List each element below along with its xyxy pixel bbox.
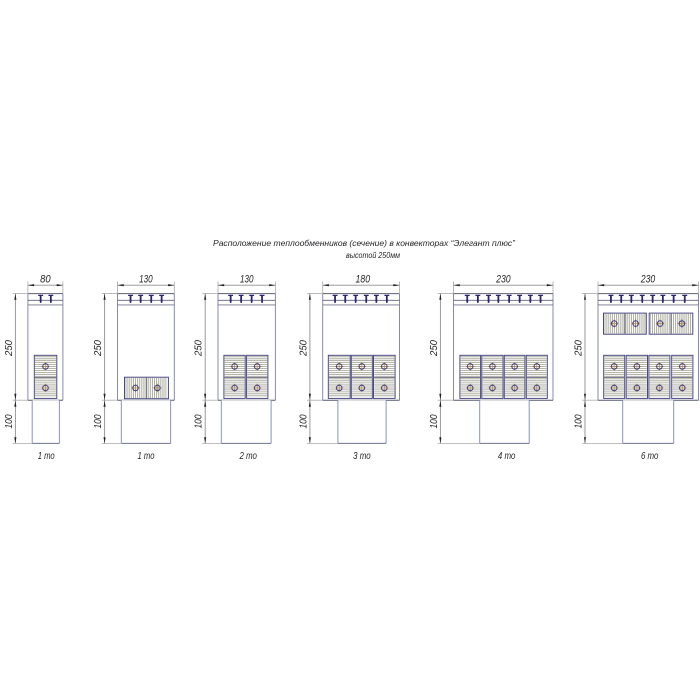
svg-text:3 то: 3 то bbox=[353, 451, 371, 462]
svg-text:1 то: 1 то bbox=[138, 451, 155, 462]
svg-text:230: 230 bbox=[495, 274, 511, 286]
svg-text:250: 250 bbox=[574, 340, 585, 357]
svg-text:100: 100 bbox=[429, 414, 440, 428]
svg-text:230: 230 bbox=[640, 274, 656, 286]
svg-text:130: 130 bbox=[139, 274, 153, 286]
svg-text:высотой 250мм: высотой 250мм bbox=[346, 251, 400, 260]
svg-text:2 то: 2 то bbox=[239, 451, 258, 462]
svg-text:180: 180 bbox=[356, 274, 371, 286]
svg-text:80: 80 bbox=[40, 274, 51, 286]
svg-text:250: 250 bbox=[298, 340, 309, 357]
svg-text:6 то: 6 то bbox=[641, 451, 659, 462]
svg-text:Расположение теплообменников (: Расположение теплообменников (сечение) в… bbox=[213, 239, 516, 248]
svg-text:100: 100 bbox=[574, 414, 585, 428]
svg-text:130: 130 bbox=[240, 274, 254, 286]
svg-text:100: 100 bbox=[4, 414, 15, 428]
svg-text:100: 100 bbox=[298, 414, 309, 428]
svg-text:250: 250 bbox=[93, 340, 104, 357]
svg-text:100: 100 bbox=[93, 414, 104, 428]
svg-text:100: 100 bbox=[194, 414, 205, 428]
svg-text:4 то: 4 то bbox=[498, 451, 516, 462]
svg-text:250: 250 bbox=[429, 340, 440, 357]
svg-text:250: 250 bbox=[4, 340, 15, 357]
svg-text:1 то: 1 то bbox=[38, 451, 55, 462]
svg-text:250: 250 bbox=[194, 340, 205, 357]
